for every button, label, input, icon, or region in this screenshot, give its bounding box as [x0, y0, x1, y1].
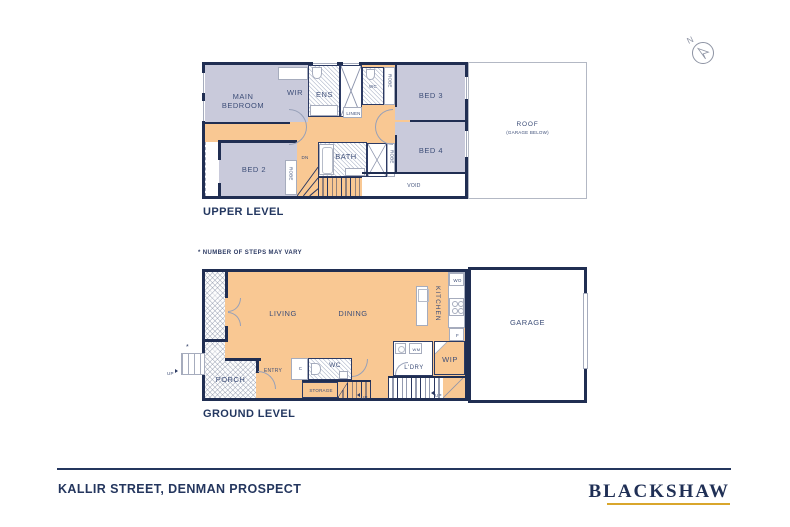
address-title: KALLIR STREET, DENMAN PROSPECT [58, 482, 301, 496]
bath-label: BATH [324, 152, 368, 161]
up-arrow-icon [357, 393, 360, 397]
bed3-label: BED 3 [397, 91, 465, 100]
wall [205, 339, 226, 342]
wc-ground-label: WC [315, 362, 355, 370]
door-arc [375, 109, 393, 127]
washing-machine: WM [409, 343, 422, 354]
entry-label: ENTRY [257, 368, 289, 374]
bed2-label: BED 2 [219, 165, 289, 174]
ensuite-vanity [310, 105, 338, 116]
stairs-upper [318, 177, 362, 196]
stairs-winder [297, 160, 318, 196]
cupboard-label: C [292, 366, 309, 372]
up-label: UP [167, 371, 174, 376]
ens-label: ENS [309, 90, 340, 99]
front-steps-asterisk: * [186, 344, 189, 351]
wall [219, 140, 297, 143]
brand-logo: BLACKSHAW [560, 481, 730, 503]
sink [418, 289, 429, 302]
roof-label: ROOF [469, 121, 586, 129]
room-laundry: WM L'DRY [393, 341, 433, 376]
garage-door [583, 293, 588, 369]
ground-floor-plan: WO F KITCHEN WIP WM L'DRY [202, 269, 468, 401]
steps-note: * NUMBER OF STEPS MAY VARY [198, 250, 302, 256]
linen-label: LINEN [344, 111, 363, 117]
wall [218, 140, 221, 160]
door-arc [289, 127, 307, 145]
laundry-tub [395, 343, 406, 354]
door-arc [228, 312, 241, 326]
cooktop [449, 298, 464, 316]
robe-label: ROBE [389, 150, 395, 164]
garage-area: GARAGE [468, 267, 587, 403]
up-marker: UP [357, 386, 368, 404]
robe-label: ROBE [387, 74, 393, 88]
room-wc-ground: WC [308, 358, 352, 380]
wir-closet [278, 67, 308, 80]
wm-label: WM [410, 347, 423, 352]
wall [410, 120, 465, 122]
bed4-label: BED 4 [397, 146, 465, 155]
rear-ramp [443, 378, 463, 398]
floor-plan-page: N ROBE LINEN ROBE [0, 0, 790, 527]
wall [218, 183, 221, 196]
up-marker: UP [431, 384, 442, 402]
cupboard: C [291, 358, 308, 380]
dn-label: DN [298, 155, 312, 161]
wir-label: WIR [280, 88, 310, 97]
fridge: F [449, 328, 464, 341]
garage-label: GARAGE [471, 318, 584, 327]
wall [395, 65, 397, 107]
wc-upper-label: WC [362, 84, 384, 90]
main-bedroom-label: MAIN BEDROOM [211, 92, 275, 111]
living-label: LIVING [258, 309, 308, 318]
footer-rule [57, 468, 731, 470]
kitchen-label: KITCHEN [433, 281, 441, 327]
window [343, 62, 359, 65]
linen-cupboard: LINEN [343, 107, 362, 118]
robe-bed3: ROBE [384, 67, 395, 105]
void-label: VOID [362, 183, 466, 189]
wall [302, 380, 371, 382]
burner [458, 301, 464, 307]
fridge-label: F [450, 333, 465, 339]
room-wip: WIP [434, 341, 465, 375]
brand-gold-underline [607, 503, 730, 505]
island-bench [416, 286, 428, 326]
burner [458, 308, 464, 314]
upper-level-title: UPPER LEVEL [203, 206, 284, 218]
window [202, 73, 205, 93]
up-arrow-icon [175, 369, 178, 373]
toilet-icon [312, 67, 322, 79]
up-label: UP [361, 395, 368, 400]
deck-area [205, 272, 225, 342]
window [313, 62, 337, 65]
dining-label: DINING [328, 309, 378, 318]
storage-label: STORAGE [303, 388, 339, 394]
wip-label: WIP [435, 355, 465, 364]
door-arc [352, 359, 368, 377]
door-arc [228, 298, 241, 312]
toilet-icon [366, 69, 375, 80]
storage-area: STORAGE [302, 382, 338, 398]
wall [225, 272, 228, 298]
porch-area [205, 342, 225, 398]
roof-sub-label: (GARAGE BELOW) [469, 130, 586, 136]
up-arrow-icon [431, 391, 434, 395]
upper-floor-plan: ROBE LINEN ROBE ROBE DN [202, 62, 468, 199]
ground-level-title: GROUND LEVEL [203, 408, 295, 420]
tub-bowl [398, 346, 405, 353]
wall [362, 172, 465, 174]
wall [225, 326, 228, 342]
up-marker: UP [167, 362, 178, 380]
up-label: UP [435, 393, 442, 398]
basin [339, 371, 348, 379]
north-arrow-icon [692, 42, 714, 64]
balcony-outside [205, 142, 219, 196]
wo-label: WO [450, 278, 465, 284]
roof-area: ROOF (GARAGE BELOW) [468, 62, 587, 199]
wall [205, 122, 290, 124]
door-arc [395, 362, 408, 375]
window [202, 101, 205, 121]
wall-oven: WO [449, 273, 464, 286]
front-steps [181, 353, 205, 375]
porch-label: PORCH [205, 375, 256, 384]
